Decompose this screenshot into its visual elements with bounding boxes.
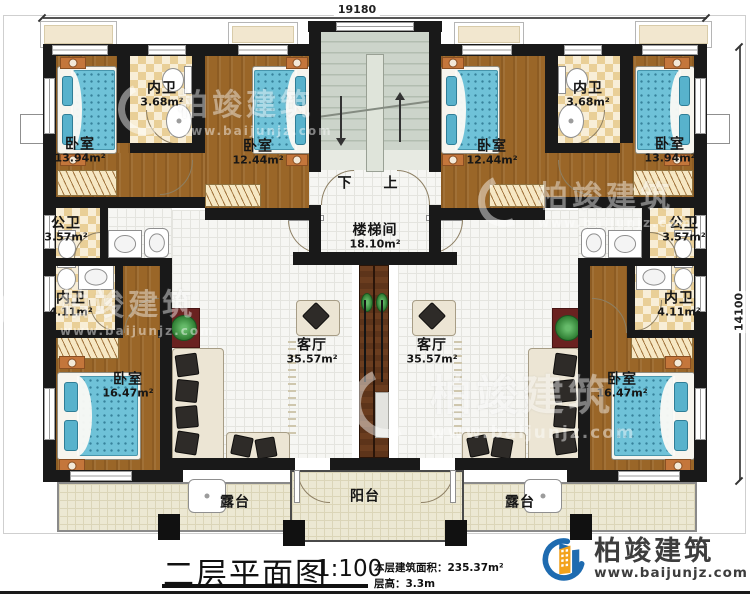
sofa-pillow	[175, 379, 199, 403]
cabinet-handle	[364, 300, 366, 382]
toilet-icon	[57, 268, 76, 290]
dimension-line-right	[739, 46, 741, 480]
wall-stair-tower-right	[429, 21, 441, 172]
dimension-right-label: 14100	[733, 291, 746, 333]
wall-hall-bottom	[293, 252, 457, 265]
wall-ensuite-bottom-right	[557, 143, 620, 153]
window-top-6	[642, 45, 698, 55]
stair-arrow-down	[340, 96, 342, 138]
room-label: 公卫3.57m²	[662, 216, 705, 243]
wardrobe	[205, 184, 261, 207]
wall-bath-divider-left	[43, 258, 108, 266]
column	[445, 520, 467, 546]
sink-counter	[636, 264, 672, 290]
shoe-cabinet	[375, 392, 389, 438]
wardrobe	[57, 170, 117, 196]
wall-mid-right	[545, 197, 707, 208]
wall-living-right	[578, 258, 590, 470]
sink-counter	[78, 264, 114, 290]
floor-plan-page: 卧室13.94m² 内卫3.68m² 卧室12.44m² 楼梯间18.10m² …	[0, 0, 750, 594]
wall-ensuite-bottom-left	[130, 143, 193, 153]
room-label: 客厅35.57m²	[286, 338, 337, 365]
wall-sharedbath-side-right	[642, 197, 650, 258]
sofa-pillow	[553, 379, 577, 403]
window-left-1	[44, 78, 55, 134]
stair-stringer	[366, 54, 384, 172]
logo-name: 柏竣建筑	[594, 538, 748, 565]
room-label: 公卫3.57m²	[44, 216, 87, 243]
room-label: 客厅35.57m²	[406, 338, 457, 365]
window-right-1	[695, 78, 706, 134]
door-leaf	[294, 470, 300, 503]
logo-url: www.baijunjz.com	[594, 565, 748, 581]
toilet-tank	[184, 66, 192, 94]
wall-living-bottom-r2	[374, 458, 420, 470]
sofa-pillow	[552, 430, 577, 455]
wardrobe	[633, 170, 693, 196]
sink-counter	[108, 230, 142, 258]
plan-area-info: 本层建筑面积：235.37m²	[374, 560, 504, 575]
room-label: 内卫3.68m²	[140, 81, 183, 108]
stair-up-label: 上	[384, 176, 399, 191]
sofa-pillow	[175, 405, 199, 429]
wall-bedroom2-bottom-left	[205, 208, 321, 220]
sofa-pillow	[174, 430, 199, 455]
window-top-1	[52, 45, 108, 55]
sofa-pillow	[254, 436, 277, 459]
room-label: 楼梯间18.10m²	[349, 223, 400, 250]
wall-living-left	[160, 258, 172, 470]
room-label: 卧室13.94m²	[54, 137, 105, 164]
wall-bed-bath-left	[117, 44, 130, 143]
room-label: 内卫4.11m²	[657, 291, 700, 318]
plan-scale: 1:100	[316, 556, 382, 582]
sofa-pillow	[175, 353, 200, 378]
wall-bath-divider-right	[642, 258, 707, 266]
plant-icon	[171, 315, 197, 341]
wall-step-right	[567, 458, 578, 482]
stair-arrow-down-head	[336, 138, 346, 146]
plant-icon	[361, 293, 373, 312]
wall-botbed-top-left-a	[43, 330, 123, 338]
room-label: 阳台	[350, 489, 380, 504]
wall-botbed-top-right-b	[578, 330, 592, 338]
nightstand	[442, 154, 464, 166]
wall-mid-left	[43, 197, 205, 208]
window-bottom-right	[618, 471, 680, 481]
wall-living-bottom-r1	[455, 458, 578, 470]
toilet-tank	[558, 66, 566, 94]
stair-arrow-up-head	[395, 92, 405, 100]
sofa-pillow	[553, 405, 577, 429]
nightstand	[665, 356, 691, 369]
exterior-box-right	[706, 114, 730, 144]
water-heater-icon	[581, 228, 606, 258]
room-label: 露台	[220, 495, 250, 510]
plan-height-info: 层高：3.3m	[374, 576, 435, 591]
cabinet-handle	[381, 300, 383, 382]
room-label: 内卫4.11m²	[49, 291, 92, 318]
sofa-pillow	[230, 434, 254, 458]
logo-building-icon	[540, 531, 588, 587]
wall-bath-bed2-left	[192, 44, 205, 153]
wall-ensuitemid-side-left	[115, 266, 123, 330]
room-label: 卧室12.44m²	[232, 139, 283, 166]
wall-bed-bath-right	[620, 44, 633, 143]
nightstand	[286, 57, 308, 69]
column	[158, 514, 180, 540]
wall-bedroom2-bottom-right	[429, 208, 545, 220]
sofa-pillow	[553, 353, 578, 378]
nightstand	[59, 356, 85, 369]
wall-botbed-top-left-b	[158, 330, 172, 338]
exterior-box-left	[20, 114, 44, 144]
nightstand	[664, 57, 690, 69]
wall-living-bottom-l1	[172, 458, 295, 470]
nightstand	[60, 57, 86, 69]
sink-counter	[608, 230, 642, 258]
wall-bath-bed2-right	[545, 44, 558, 153]
water-heater-icon	[144, 228, 169, 258]
nightstand	[442, 57, 464, 69]
stair-down-label: 下	[338, 176, 353, 191]
door-leaf	[450, 470, 456, 503]
window-right-4	[695, 388, 706, 440]
column	[283, 520, 305, 546]
dimension-top-label: 19180	[334, 3, 380, 16]
wall-stair-tower-left	[309, 21, 321, 172]
room-label: 卧室16.47m²	[102, 372, 153, 399]
wall-ensuitemid-side-right	[627, 266, 635, 330]
sofa-pillow	[466, 434, 490, 458]
wall-botbed-top-right-a	[627, 330, 707, 338]
wall-sharedbath-side-left	[100, 197, 108, 258]
room-label: 露台	[505, 495, 535, 510]
window-bottom-left	[70, 471, 132, 481]
wall-step-left	[172, 458, 183, 482]
wardrobe	[489, 184, 545, 207]
stair-arrow-up	[399, 100, 401, 142]
window-top-5	[564, 45, 602, 55]
wall-living-bottom-l2	[330, 458, 376, 470]
window-top-4	[462, 45, 512, 55]
toilet-icon	[674, 268, 693, 290]
room-label: 内卫3.68m²	[566, 81, 609, 108]
company-logo: 柏竣建筑 www.baijunjz.com	[540, 528, 748, 590]
nightstand	[286, 154, 308, 166]
window-top-2	[148, 45, 186, 55]
window-stair-tower	[336, 22, 414, 31]
sofa-pillow	[490, 436, 513, 459]
room-label: 卧室16.47m²	[596, 372, 647, 399]
window-top-3	[238, 45, 288, 55]
room-label: 卧室13.94m²	[644, 137, 695, 164]
room-label: 卧室12.44m²	[466, 139, 517, 166]
window-left-4	[44, 388, 55, 440]
dimension-line-top	[43, 17, 707, 19]
title-underline	[162, 584, 368, 588]
